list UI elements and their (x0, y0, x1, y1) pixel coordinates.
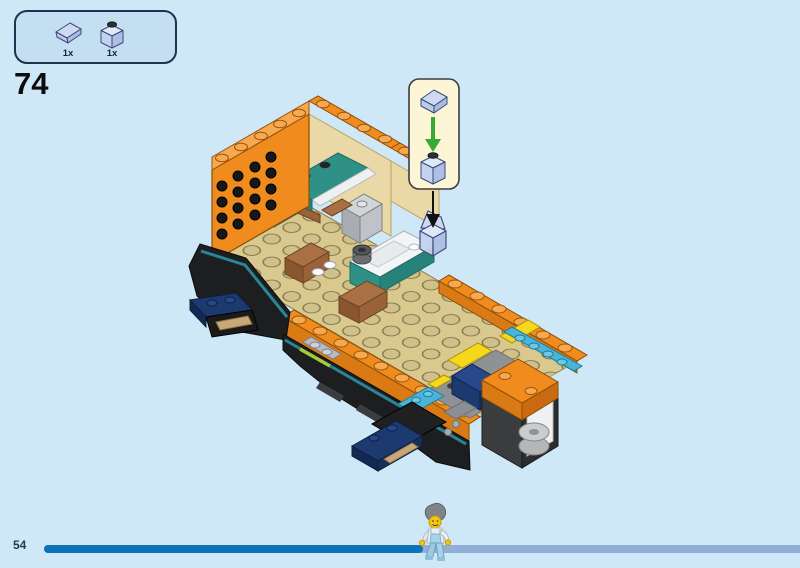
stove-cylinder (353, 245, 371, 264)
instruction-page: 1x 1x 74 (0, 0, 800, 568)
progress-minifigure (405, 500, 461, 566)
boat-assembly-illustration (0, 0, 800, 568)
progress-bar-fill (44, 545, 423, 553)
page-number: 54 (13, 538, 26, 552)
minifig-head (429, 516, 441, 528)
minifig-legs (425, 543, 445, 561)
stern-winch-box (482, 359, 558, 468)
callout-box (409, 79, 459, 189)
